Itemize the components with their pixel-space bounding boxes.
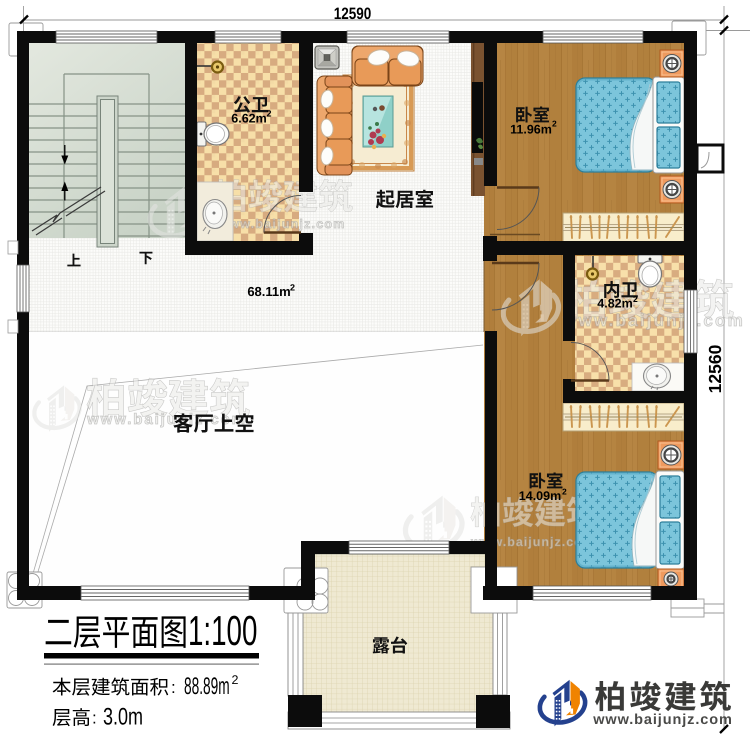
svg-text:1:100: 1:100 (188, 607, 257, 654)
svg-text:3.0m: 3.0m (103, 704, 143, 731)
svg-text:2: 2 (267, 109, 272, 119)
svg-text:14.09m: 14.09m (519, 489, 561, 503)
svg-text::: : (171, 678, 176, 697)
svg-text:2: 2 (633, 294, 638, 304)
svg-text:www.baijunjz.com: www.baijunjz.com (217, 217, 345, 231)
svg-text:www.baijunjz.com: www.baijunjz.com (562, 311, 745, 330)
svg-text:12560: 12560 (705, 344, 725, 393)
svg-text:11.96m: 11.96m (510, 123, 552, 137)
svg-text:4.82m: 4.82m (597, 297, 632, 311)
svg-text:6.62m: 6.62m (231, 112, 266, 126)
svg-text:2: 2 (552, 119, 557, 129)
svg-text:12590: 12590 (334, 5, 372, 23)
svg-text::: : (92, 709, 97, 728)
svg-text:68.11m: 68.11m (247, 284, 290, 299)
svg-text:www.baijunjz.com: www.baijunjz.com (592, 712, 733, 728)
svg-text:2: 2 (562, 487, 567, 497)
svg-text:2: 2 (232, 673, 239, 687)
svg-text:2: 2 (290, 283, 295, 293)
svg-text:88.89m: 88.89m (184, 673, 230, 700)
